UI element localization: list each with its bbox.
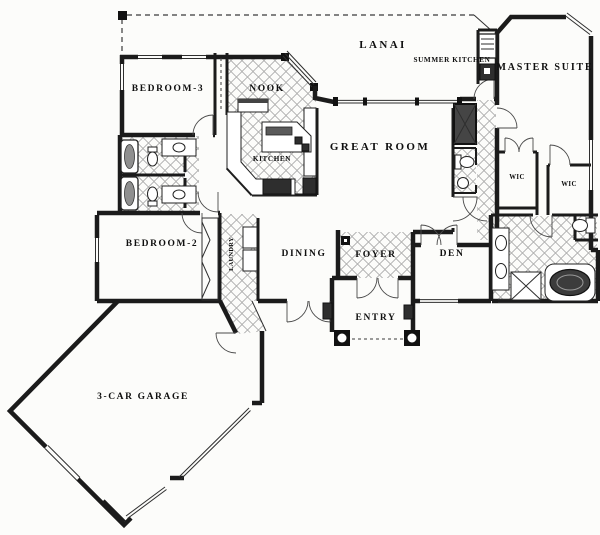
- room-label-bedroom2: BEDROOM-2: [126, 239, 198, 249]
- bathtub-1-basin: [125, 145, 135, 169]
- kitchen-pantry-cabinet: [303, 178, 316, 194]
- dryer: [243, 250, 257, 271]
- room-label-summer-kitchen: SUMMER KITCHEN: [414, 56, 491, 64]
- foyer-post-center: [344, 239, 347, 242]
- toilet-1-bowl: [148, 152, 158, 166]
- vanity-1-sink: [173, 143, 185, 152]
- garage-door-1: [179, 408, 251, 480]
- room-label-entry: ENTRY: [356, 313, 397, 323]
- vanity-2-sink: [173, 190, 185, 199]
- bifold-doors: [202, 222, 210, 298]
- room-label-foyer: FOYER: [355, 250, 396, 260]
- room-label-bedroom3: BEDROOM-3: [132, 84, 204, 94]
- room-label-dining: DINING: [282, 249, 327, 259]
- nook-peninsula-edge: [238, 99, 268, 103]
- entry-planter-left: [323, 303, 332, 319]
- toilet-2-tank: [148, 201, 157, 206]
- garage-doors: [126, 301, 266, 519]
- powder-sink: [458, 178, 469, 189]
- master-sink-2: [496, 264, 507, 279]
- summer-kitchen-cabinet-door: [484, 68, 490, 74]
- lanai-boundary: [118, 11, 492, 53]
- master-corner-window: [565, 13, 592, 35]
- bedroom2-closet: [202, 218, 218, 300]
- cooktop-burner-1: [295, 137, 302, 144]
- toilet-1-tank: [148, 147, 157, 152]
- sliding-glass-door: [333, 97, 462, 106]
- room-label-nook: NOOK: [249, 84, 284, 94]
- toilet-2-bowl: [148, 187, 158, 201]
- cooktop-burner-2: [302, 144, 309, 151]
- entry-planter-right: [404, 305, 413, 319]
- entry-column-left-cap: [338, 334, 347, 343]
- lanai-corner-post: [118, 11, 127, 20]
- room-label-garage: 3-CAR GARAGE: [97, 392, 189, 402]
- island-sink-counter: [266, 127, 292, 135]
- entry-column-right-cap: [408, 334, 417, 343]
- garage-window: [45, 446, 80, 481]
- room-label-kitchen: KITCHEN: [253, 155, 291, 163]
- master-sink-1: [496, 236, 507, 251]
- room-label-wic2: WIC: [561, 181, 577, 188]
- floor-plan-canvas: LANAI SUMMER KITCHEN MASTER SUITE BEDROO…: [0, 0, 600, 535]
- powder-toilet-bowl: [460, 157, 474, 168]
- garage-door-2: [126, 487, 167, 519]
- room-label-master-suite: MASTER SUITE: [497, 62, 594, 73]
- master-toilet-bowl: [573, 220, 588, 232]
- washer: [243, 227, 257, 248]
- garden-tub: [550, 270, 590, 296]
- grill: [479, 34, 496, 58]
- room-label-lanai: LANAI: [359, 39, 406, 51]
- room-label-laundry: LAUNDRY: [228, 237, 235, 271]
- refrigerator: [263, 179, 291, 194]
- room-label-den: DEN: [440, 249, 465, 259]
- bathtub-2-basin: [125, 182, 135, 206]
- room-label-wic1: WIC: [509, 174, 525, 181]
- floor-plan-page: LANAI SUMMER KITCHEN MASTER SUITE BEDROO…: [0, 0, 600, 535]
- room-label-great-room: GREAT ROOM: [330, 141, 430, 153]
